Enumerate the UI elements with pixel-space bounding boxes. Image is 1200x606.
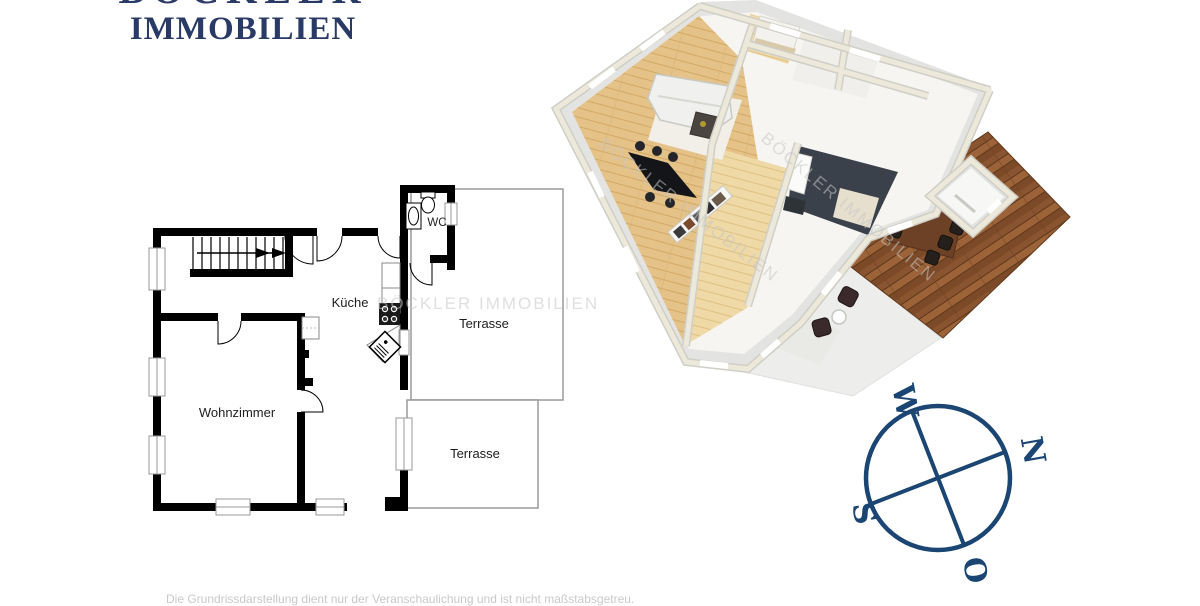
compass-east-label: O [955,554,994,586]
washbasin-icon [403,203,421,229]
compass-west-label: W [884,381,925,423]
sink-icon [369,331,400,362]
compass: W N S O [844,381,1052,587]
terrace-table [832,310,846,324]
compass-north-label: N [1013,434,1052,467]
label-terrasse-oben: Terrasse [459,316,509,331]
toilet-icon [421,192,435,213]
label-wc: WC [427,217,446,229]
floorplan-3d: BÖCKLER IMMOBILIEN BÖCKLER IMMOBILIEN [556,0,1070,396]
label-wohnzimmer: Wohnzimmer [199,405,276,420]
floorplan-sheet: { "logo": { "line1": "BÖCKLER", "line2":… [0,0,1200,600]
compass-needle-lines [871,411,1005,545]
label-kueche: Küche [332,295,369,310]
watermark-2d: BÖCKLER IMMOBILIEN [377,294,599,313]
compass-south-label: S [844,500,882,527]
floorplan-2d: Küche WC Wohnzimmer Terrasse Terrasse BÖ… [149,185,599,515]
disclaimer-text: Die Grundrissdarstellung dient nur der V… [166,592,1056,606]
label-terrasse-unten: Terrasse [450,446,500,461]
floorplan-graphic: BÖCKLER IMMOBILIEN BÖCKLER IMMOBILIEN [0,0,1200,600]
staircase [193,237,286,269]
